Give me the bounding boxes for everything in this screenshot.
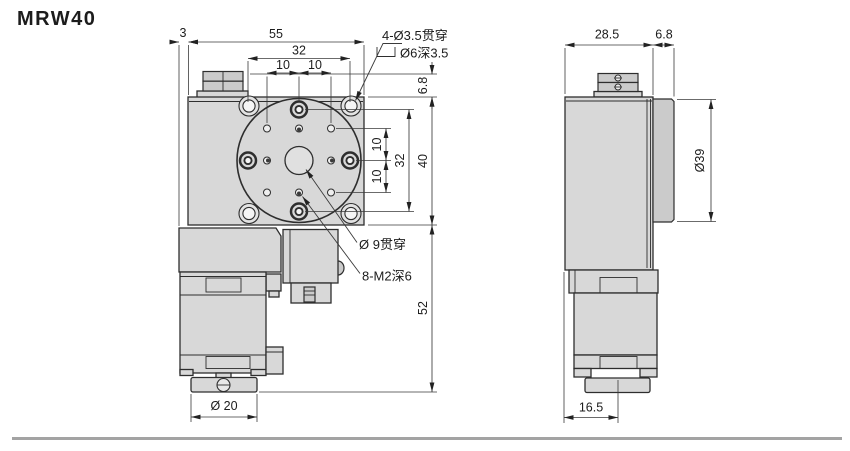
connector-pin — [304, 287, 315, 302]
motor-end-cap — [585, 378, 650, 393]
corner-hole-inner — [243, 207, 255, 219]
motor-body — [180, 272, 266, 373]
drawing-canvas: MRW40 — [0, 0, 850, 451]
corner-hole-callout: 4-Ø3.5贯穿 Ø6深3.5 — [356, 28, 449, 101]
page-title: MRW40 — [17, 8, 96, 30]
dim-10-right-lower: 10 — [370, 170, 384, 184]
dim-6.8-front: 6.8 — [416, 77, 430, 94]
corner-hole-inner — [345, 100, 357, 112]
mount-hole-inner — [295, 106, 302, 113]
thread-hole — [264, 189, 271, 196]
dim-32-top: 32 — [292, 44, 306, 58]
motor-side-block — [266, 347, 283, 374]
dim-28.5: 28.5 — [595, 28, 619, 42]
dim-6.8-side: 6.8 — [655, 28, 672, 42]
dim-10-top-left: 10 — [276, 58, 290, 72]
callout-center-hole: Ø 9贯穿 — [359, 237, 406, 252]
motor-lower — [574, 355, 657, 369]
dim-10-right-upper: 10 — [370, 138, 384, 152]
side-main-body — [565, 97, 653, 270]
dim-16.5: 16.5 — [579, 401, 603, 415]
motor-foot — [251, 370, 266, 376]
thread-hole-dot — [266, 159, 270, 163]
dim-52: 52 — [416, 301, 430, 315]
dim-3: 3 — [180, 26, 187, 40]
dim-dia39: Ø39 — [693, 149, 707, 173]
mount-hole-inner — [244, 157, 251, 164]
mount-hole-inner — [346, 157, 353, 164]
thread-hole-dot — [297, 128, 301, 132]
thread-hole-dot — [297, 192, 301, 196]
motor-foot — [574, 369, 591, 378]
side-gearbox — [569, 270, 658, 293]
dim-55: 55 — [269, 27, 283, 41]
motor-body — [574, 293, 657, 355]
side-clamp-knob — [594, 74, 642, 98]
thread-hole — [328, 125, 335, 132]
dim-dia20: Ø 20 — [210, 399, 237, 413]
motor-foot — [180, 370, 193, 376]
side-view: 28.5 6.8 Ø39 16.5 — [564, 28, 716, 424]
center-hole — [285, 147, 313, 175]
thread-hole-dot — [330, 159, 334, 163]
callout-corner-line1: 4-Ø3.5贯穿 — [382, 28, 448, 43]
knob-base — [594, 92, 642, 98]
side-motor — [574, 293, 657, 393]
dim-10-top-right: 10 — [308, 58, 322, 72]
worm-shaft-tab — [266, 274, 281, 291]
table-disc — [653, 99, 674, 222]
dim-32-right: 32 — [393, 154, 407, 168]
counterbore-icon — [377, 47, 395, 57]
gearbox — [179, 228, 281, 272]
clamp-knob — [197, 72, 248, 98]
callout-thread: 8-M2深6 — [362, 269, 412, 284]
corner-hole-inner — [345, 207, 357, 219]
thread-hole — [328, 189, 335, 196]
technical-drawing: MRW40 — [0, 0, 850, 451]
corner-hole-inner — [243, 100, 255, 112]
front-view: 3 55 32 10 10 6.8 10 32 10 40 52 Ø 20 4-… — [170, 26, 448, 422]
connector-box — [283, 230, 338, 284]
worm-shaft-tab-small — [269, 291, 279, 297]
dim-40: 40 — [416, 154, 430, 168]
mount-hole-inner — [295, 208, 302, 215]
motor-foot — [640, 369, 657, 378]
thread-hole — [264, 125, 271, 132]
callout-corner-line2: Ø6深3.5 — [400, 46, 448, 61]
